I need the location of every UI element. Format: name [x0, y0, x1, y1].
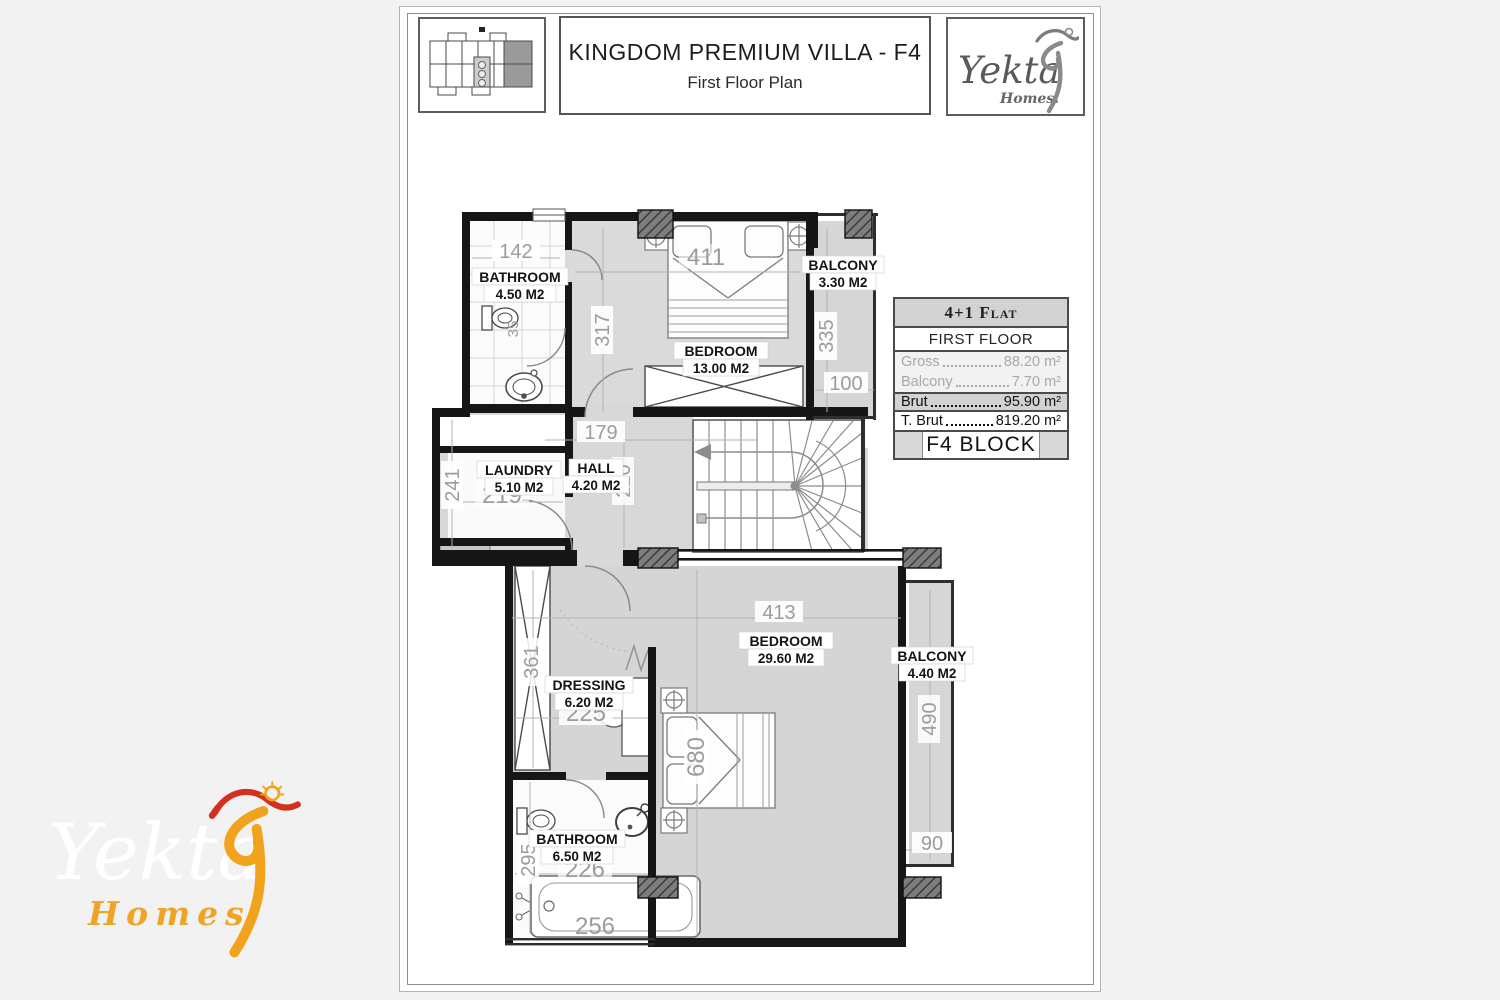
room-label-balcony-lower: BALCONY 4.40 M2 — [891, 647, 973, 681]
block-side-cell — [1039, 432, 1067, 458]
room-label-dressing: DRESSING 6.20 M2 — [545, 676, 633, 710]
svg-text:BALCONY: BALCONY — [808, 257, 878, 273]
svg-text:4.20 M2: 4.20 M2 — [572, 478, 621, 493]
row-label: Brut — [901, 394, 928, 410]
svg-text:DRESSING: DRESSING — [552, 677, 625, 693]
dim-256: 256 — [575, 913, 615, 940]
brand-logo-box: Yekta Homes. — [946, 17, 1085, 116]
svg-text:HALL: HALL — [577, 460, 615, 476]
dim-90: 90 — [921, 833, 943, 855]
dim-413: 413 — [762, 602, 795, 624]
row-value: 88.20 m² — [1004, 354, 1061, 370]
svg-text:6.50 M2: 6.50 M2 — [553, 849, 602, 864]
table-row-tbrut: T. Brut 819.20 m² — [895, 412, 1067, 432]
block-name-row: F4 BLOCK — [895, 432, 1067, 458]
room-label-balcony-upper: BALCONY 3.30 M2 — [802, 256, 884, 290]
room-label-bedroom-lower: BEDROOM 29.60 M2 — [739, 632, 833, 666]
room-label-hall: HALL 4.20 M2 — [563, 459, 629, 493]
dim-490: 490 — [919, 702, 941, 735]
svg-text:4.50 M2: 4.50 M2 — [496, 287, 545, 302]
dim-241: 241 — [442, 468, 464, 501]
title-block: KINGDOM PREMIUM VILLA - F4 First Floor P… — [559, 16, 931, 115]
floor-plan-drawing: 142 411 317 335 100 179 220 241 219 35 4… — [0, 0, 1500, 1000]
svg-text:13.00 M2: 13.00 M2 — [693, 361, 749, 376]
nightstand-lower-top — [661, 688, 687, 713]
room-label-bathroom-upper: BATHROOM 4.50 M2 — [472, 268, 568, 302]
svg-text:BATHROOM: BATHROOM — [479, 269, 560, 285]
row-value: 7.70 m² — [1012, 374, 1061, 390]
row-value: 819.20 m² — [996, 413, 1061, 429]
dotted-leader — [946, 424, 993, 426]
floor-name: FIRST FLOOR — [895, 328, 1067, 352]
room-label-bedroom-upper: BEDROOM 13.00 M2 — [674, 342, 768, 376]
svg-text:4.40 M2: 4.40 M2 — [908, 666, 957, 681]
table-row-balcony: Balcony 7.70 m² — [895, 372, 1067, 392]
table-row-brut: Brut 95.90 m² — [895, 392, 1067, 412]
brand-figure-icon — [1027, 23, 1079, 115]
svg-text:BALCONY: BALCONY — [897, 648, 967, 664]
dim-411: 411 — [687, 244, 725, 271]
site-plan-mini-drawing — [420, 19, 544, 111]
room-label-bathroom-lower: BATHROOM 6.50 M2 — [529, 830, 625, 864]
nightstand-lower-bottom — [661, 808, 687, 833]
room-label-laundry: LAUNDRY 5.10 M2 — [477, 461, 561, 495]
dim-295: 295 — [518, 843, 540, 876]
svg-text:5.10 M2: 5.10 M2 — [495, 480, 544, 495]
svg-text:6.20 M2: 6.20 M2 — [565, 695, 614, 710]
area-info-table: 4+1 Flat FIRST FLOOR Gross 88.20 m² Balc… — [893, 297, 1069, 460]
bed-upper — [668, 221, 788, 338]
svg-text:BEDROOM: BEDROOM — [749, 633, 822, 649]
svg-text:BATHROOM: BATHROOM — [536, 831, 617, 847]
dotted-leader — [931, 405, 1001, 407]
block-side-cell — [895, 432, 923, 458]
dim-35: 35 — [505, 321, 522, 338]
floorplan-page: { "header": { "title": "KINGDOM PREMIUM … — [0, 0, 1500, 1000]
svg-text:BEDROOM: BEDROOM — [684, 343, 757, 359]
dim-361: 361 — [521, 645, 543, 678]
svg-text:LAUNDRY: LAUNDRY — [485, 462, 554, 478]
row-label: Gross — [901, 354, 940, 370]
dotted-leader — [956, 385, 1009, 387]
dim-680: 680 — [683, 737, 710, 777]
table-row-gross: Gross 88.20 m² — [895, 352, 1067, 372]
row-label: T. Brut — [901, 413, 943, 429]
plan-title: KINGDOM PREMIUM VILLA - F4 — [569, 39, 922, 66]
site-plan-thumbnail — [418, 17, 546, 113]
dotted-leader — [943, 365, 1001, 367]
dim-179: 179 — [584, 422, 617, 444]
dim-317: 317 — [592, 313, 614, 346]
dim-142: 142 — [499, 241, 532, 263]
block-name: F4 BLOCK — [923, 432, 1039, 458]
svg-text:3.30 M2: 3.30 M2 — [819, 275, 868, 290]
bed-lower — [663, 713, 775, 808]
dim-335: 335 — [816, 319, 838, 352]
svg-text:29.60 M2: 29.60 M2 — [758, 651, 814, 666]
row-value: 95.90 m² — [1004, 394, 1061, 410]
plan-subtitle: First Floor Plan — [687, 73, 802, 93]
dim-100: 100 — [829, 373, 862, 395]
row-label: Balcony — [901, 374, 953, 390]
flat-type-header: 4+1 Flat — [895, 299, 1067, 328]
